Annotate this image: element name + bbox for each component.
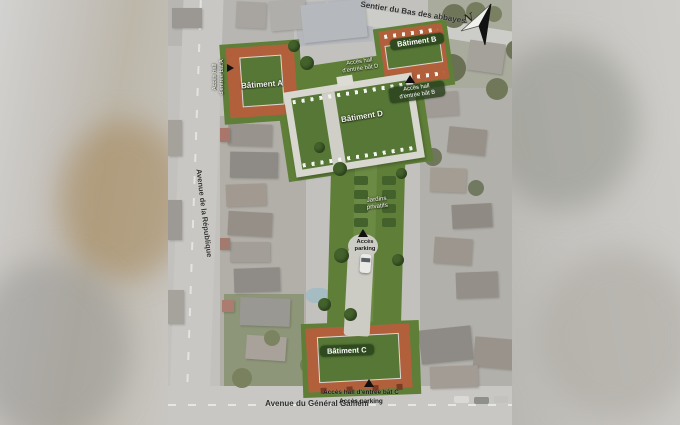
- house-roof: [235, 1, 266, 29]
- house-roof: [168, 200, 182, 240]
- tree: [486, 78, 508, 100]
- blurred-edge-right: [508, 0, 680, 425]
- access-b-marker-icon: [405, 75, 415, 83]
- parking-marker-icon: [358, 229, 368, 237]
- house-roof: [433, 237, 473, 266]
- access-hall-c-label: Accès hall d'entrée bât C: [316, 389, 406, 397]
- hedge: [354, 218, 368, 227]
- house-roof: [230, 152, 278, 179]
- house-roof: [418, 325, 473, 364]
- building-d-stair-tower: [336, 75, 353, 87]
- tree: [333, 162, 347, 176]
- hedge: [382, 176, 396, 185]
- north-arrow-icon: N: [454, 0, 504, 50]
- house-roof: [172, 8, 202, 28]
- hedge: [382, 218, 396, 227]
- blurred-edge-left: [0, 0, 170, 425]
- blur-blob: [508, 40, 638, 210]
- house-roof: [227, 211, 272, 237]
- house-roof: [430, 167, 467, 192]
- tree: [232, 368, 252, 388]
- house-roof: [240, 297, 291, 327]
- tree: [468, 180, 484, 196]
- blur-blob: [0, 260, 130, 425]
- house-roof: [168, 290, 184, 324]
- building-c-roof-garden: [318, 334, 400, 382]
- tree: [300, 56, 314, 70]
- house-roof: [228, 123, 273, 147]
- access-parking-mid-line1: Accès: [348, 239, 382, 246]
- aerial-photo: Sentier du Bas des abbayes Avenue de la …: [168, 0, 512, 425]
- house-roof: [230, 242, 270, 262]
- car-windshield: [361, 258, 370, 263]
- tree: [264, 330, 280, 346]
- tree: [392, 254, 404, 266]
- tree: [334, 248, 349, 263]
- access-hall-a-line1: Accès hall: [212, 48, 219, 106]
- house-roof: [430, 365, 479, 389]
- tree: [396, 168, 407, 179]
- site-plan-aerial-view: Sentier du Bas des abbayes Avenue de la …: [0, 0, 680, 425]
- house-roof: [220, 238, 230, 250]
- access-parking-mid-line2: parking: [348, 246, 382, 253]
- house-roof: [456, 271, 499, 298]
- house-roof: [220, 128, 230, 142]
- building-c-label: Bâtiment C: [320, 344, 374, 357]
- house-roof: [168, 120, 182, 156]
- house-roof: [226, 183, 267, 206]
- tree: [318, 298, 331, 311]
- car: [454, 396, 469, 403]
- car: [474, 397, 489, 404]
- access-parking-mid-label: Accès parking: [348, 239, 382, 253]
- house-roof: [447, 126, 488, 156]
- blur-blob: [60, 120, 170, 280]
- access-hall-a-label: Accès hall d'entrée bât A: [212, 48, 225, 106]
- house-roof: [234, 267, 281, 293]
- tree: [344, 308, 357, 321]
- blur-blob: [538, 250, 680, 420]
- house-roof: [473, 336, 512, 369]
- access-c-marker-icon: [364, 379, 374, 387]
- car: [359, 254, 371, 274]
- tree: [314, 142, 325, 153]
- access-hall-a-line2: d'entrée bât A: [219, 48, 226, 106]
- house-roof: [222, 300, 234, 312]
- tree: [288, 40, 300, 52]
- hedge: [354, 176, 368, 185]
- access-parking-c-label: Accès parking: [336, 398, 386, 406]
- car: [494, 396, 508, 403]
- access-a-marker-icon: [227, 64, 234, 72]
- house-roof: [451, 203, 492, 229]
